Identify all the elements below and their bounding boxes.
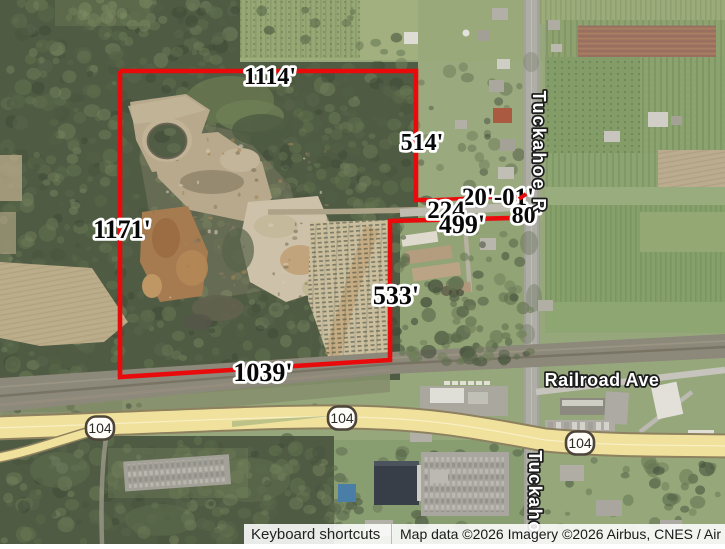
svg-text:499': 499' <box>439 210 485 239</box>
svg-text:Tuckahoe R: Tuckahoe R <box>529 91 549 214</box>
svg-text:Tuckaho: Tuckaho <box>525 450 545 533</box>
svg-text:533': 533' <box>373 281 419 310</box>
svg-text:Keyboard shortcuts: Keyboard shortcuts <box>251 526 380 543</box>
svg-text:104: 104 <box>330 410 354 426</box>
svg-text:104: 104 <box>568 435 592 451</box>
svg-text:514': 514' <box>401 130 444 156</box>
svg-text:Railroad Ave: Railroad Ave <box>545 370 660 390</box>
svg-text:1039': 1039' <box>233 358 292 387</box>
svg-text:1171': 1171' <box>93 215 151 244</box>
svg-text:104: 104 <box>88 420 112 436</box>
svg-text:Map data ©2026 Imagery ©2026 A: Map data ©2026 Imagery ©2026 Airbus, CNE… <box>400 526 721 542</box>
svg-text:1114': 1114' <box>244 64 296 90</box>
